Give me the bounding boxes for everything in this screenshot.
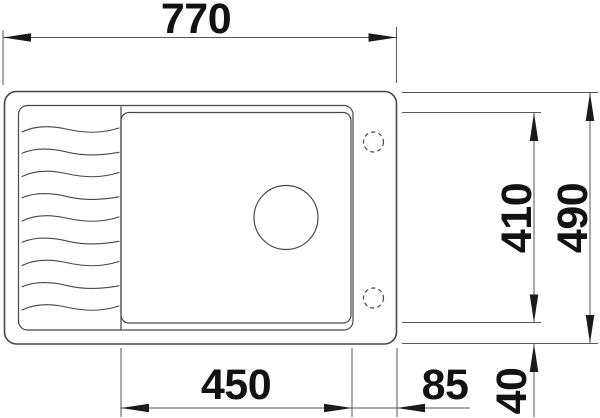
- sink-recess-outline: [19, 106, 354, 331]
- arrow-right-icon: [369, 33, 397, 42]
- drainboard-wave: [22, 216, 119, 222]
- label-rim-right: 85: [422, 361, 469, 409]
- sink-technical-drawing: 770 450 85 410 490 40: [0, 0, 600, 418]
- drainboard-wave: [22, 305, 119, 311]
- arrow-up-icon: [530, 113, 539, 141]
- drainboard: [22, 127, 119, 311]
- label-bowl-depth: 410: [493, 183, 541, 253]
- sink-body: [5, 92, 397, 345]
- drainboard-wave: [22, 238, 119, 244]
- drainboard-wave: [22, 194, 119, 200]
- label-bowl-width: 450: [201, 361, 271, 409]
- tap-hole-bottom: [364, 288, 384, 308]
- label-overall-depth: 490: [549, 183, 597, 253]
- drainboard-wave: [22, 283, 119, 289]
- arrow-up-icon: [586, 93, 595, 121]
- arrow-left-icon: [3, 33, 31, 42]
- dimension-labels: 770 450 85 410 490 40: [161, 0, 597, 414]
- drainboard-wave: [22, 149, 119, 155]
- arrow-down-icon: [586, 315, 595, 343]
- drainboard-wave: [22, 127, 119, 133]
- drainboard-wave: [22, 260, 119, 266]
- label-rim-front: 40: [488, 368, 536, 415]
- arrow-left-icon: [121, 404, 149, 413]
- drawing-canvas: 770 450 85 410 490 40: [0, 0, 600, 418]
- tap-hole-top: [364, 132, 384, 152]
- drainboard-wave: [22, 171, 119, 177]
- drain-hole: [254, 186, 318, 250]
- arrow-right-icon: [324, 404, 352, 413]
- arrow-down-icon: [530, 295, 539, 323]
- label-overall-width: 770: [161, 0, 231, 43]
- bowl-outline: [121, 113, 351, 324]
